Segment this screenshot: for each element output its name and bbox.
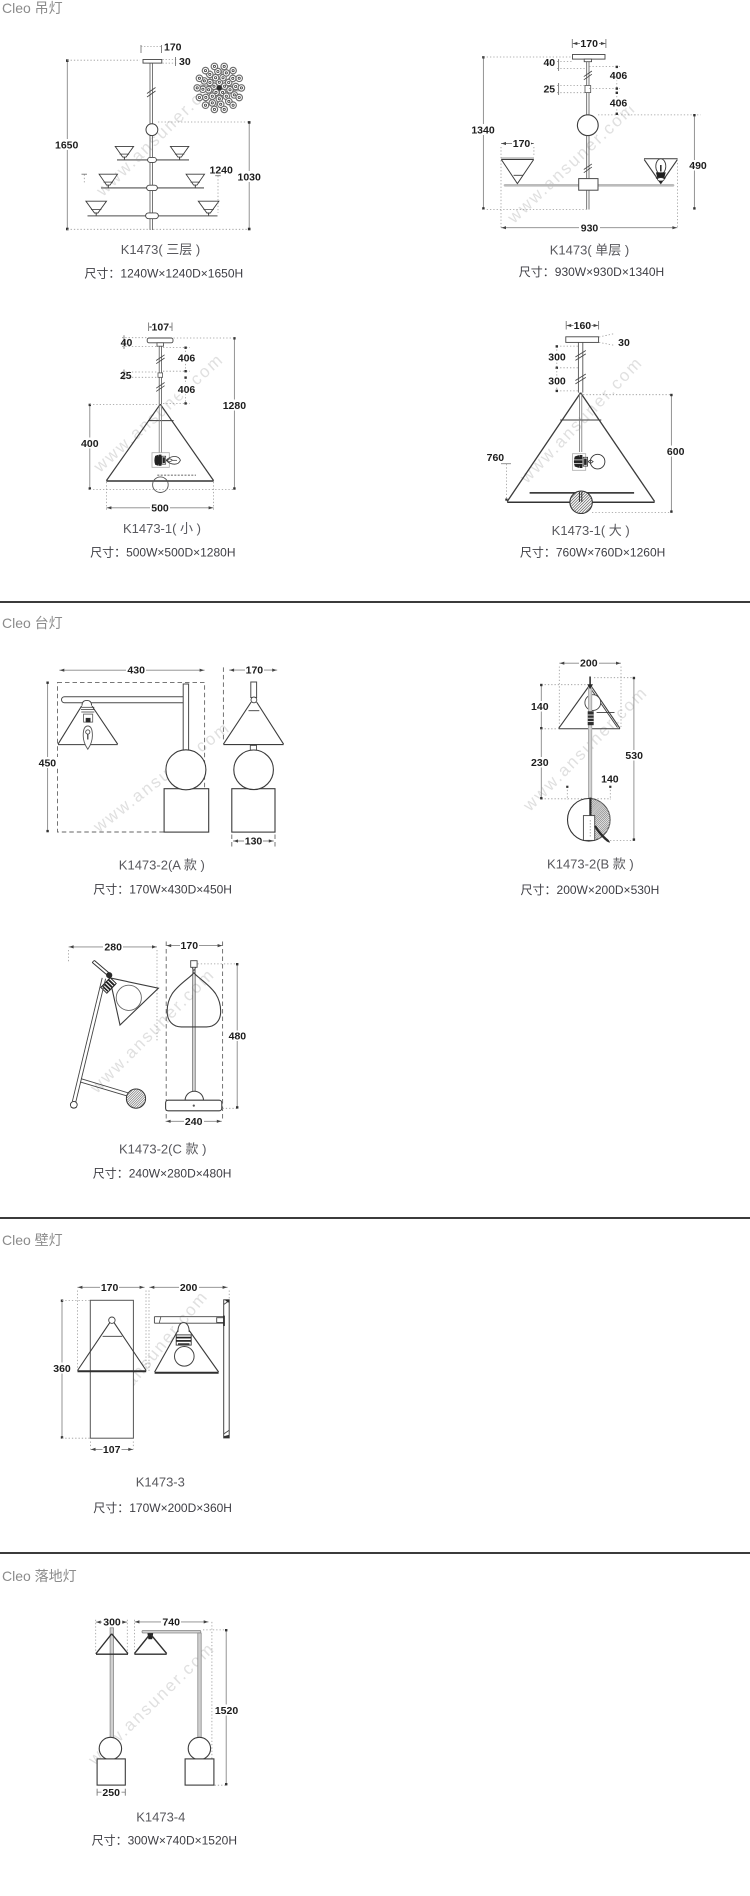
svg-text:200: 200 (580, 658, 598, 670)
svg-text:200: 200 (180, 1282, 198, 1294)
svg-text:600: 600 (667, 446, 685, 458)
svg-text:140: 140 (601, 773, 619, 785)
svg-text:K1473-4: K1473-4 (136, 1810, 185, 1825)
svg-text:406: 406 (178, 353, 196, 365)
svg-text:尺寸：170W×430D×450H: 尺寸：170W×430D×450H (93, 883, 232, 897)
svg-text:930: 930 (581, 223, 599, 235)
svg-text:K1473( 三层 ): K1473( 三层 ) (121, 242, 200, 257)
svg-text:230: 230 (531, 757, 549, 769)
svg-text:www.ansuner.com: www.ansuner.com (89, 718, 234, 837)
svg-text:K1473-2(B 款 ): K1473-2(B 款 ) (547, 857, 634, 872)
svg-text:1240: 1240 (210, 165, 234, 177)
svg-text:25: 25 (120, 370, 132, 382)
svg-text:1520: 1520 (215, 1705, 239, 1717)
svg-text:尺寸：760W×760D×1260H: 尺寸：760W×760D×1260H (520, 546, 665, 560)
svg-text:480: 480 (229, 1031, 247, 1043)
svg-text:尺寸：300W×740D×1520H: 尺寸：300W×740D×1520H (92, 1834, 237, 1848)
svg-text:尺寸：500W×500D×1280H: 尺寸：500W×500D×1280H (90, 546, 235, 560)
svg-text:尺寸：200W×200D×530H: 尺寸：200W×200D×530H (521, 883, 660, 897)
svg-text:1280: 1280 (223, 400, 247, 412)
svg-text:Cleo 壁灯: Cleo 壁灯 (2, 1232, 63, 1248)
svg-text:尺寸：240W×280D×480H: 尺寸：240W×280D×480H (93, 1167, 232, 1181)
svg-text:406: 406 (610, 98, 628, 110)
svg-text:170: 170 (181, 940, 199, 952)
svg-text:740: 740 (162, 1617, 180, 1629)
svg-text:170: 170 (580, 38, 598, 50)
svg-text:K1473-2(C 款 ): K1473-2(C 款 ) (119, 1141, 206, 1156)
svg-text:25: 25 (543, 84, 555, 96)
svg-text:K1473( 单层 ): K1473( 单层 ) (550, 243, 629, 258)
svg-text:尺寸：1240W×1240D×1650H: 尺寸：1240W×1240D×1650H (84, 267, 243, 281)
svg-text:400: 400 (81, 438, 99, 450)
svg-text:406: 406 (610, 70, 628, 82)
svg-text:K1473-1( 大 ): K1473-1( 大 ) (552, 523, 630, 538)
svg-text:107: 107 (152, 322, 170, 334)
svg-text:30: 30 (618, 337, 630, 349)
svg-text:K1473-1( 小 ): K1473-1( 小 ) (123, 521, 201, 536)
svg-text:500: 500 (151, 503, 169, 515)
svg-text:30: 30 (179, 56, 191, 68)
svg-text:K1473-2(A 款 ): K1473-2(A 款 ) (119, 858, 205, 873)
svg-text:170: 170 (246, 665, 264, 677)
svg-text:140: 140 (531, 701, 549, 713)
svg-text:160: 160 (574, 320, 592, 332)
svg-text:430: 430 (127, 665, 145, 677)
svg-text:170: 170 (513, 138, 531, 150)
svg-text:300: 300 (548, 376, 566, 388)
svg-text:130: 130 (245, 836, 263, 848)
svg-text:Cleo 吊灯: Cleo 吊灯 (2, 0, 63, 16)
svg-text:Cleo 落地灯: Cleo 落地灯 (2, 1568, 77, 1584)
svg-text:300: 300 (548, 352, 566, 364)
svg-text:530: 530 (625, 750, 643, 762)
svg-text:1030: 1030 (238, 172, 262, 184)
svg-text:490: 490 (689, 160, 707, 172)
svg-text:1340: 1340 (471, 125, 495, 137)
svg-text:107: 107 (103, 1444, 121, 1456)
svg-text:406: 406 (178, 384, 196, 396)
svg-text:250: 250 (102, 1787, 120, 1799)
svg-text:尺寸：930W×930D×1340H: 尺寸：930W×930D×1340H (519, 265, 664, 279)
svg-text:170: 170 (101, 1282, 119, 1294)
svg-text:240: 240 (185, 1116, 203, 1128)
svg-text:尺寸：170W×200D×360H: 尺寸：170W×200D×360H (93, 1501, 232, 1515)
svg-text:760: 760 (487, 452, 505, 464)
svg-text:300: 300 (103, 1617, 121, 1629)
svg-text:Cleo 台灯: Cleo 台灯 (2, 615, 63, 631)
svg-text:450: 450 (39, 757, 57, 769)
svg-text:40: 40 (121, 337, 133, 349)
svg-text:280: 280 (104, 942, 122, 954)
svg-text:1650: 1650 (55, 140, 79, 152)
svg-text:K1473-3: K1473-3 (136, 1475, 185, 1490)
svg-text:360: 360 (53, 1363, 71, 1375)
svg-text:170: 170 (164, 42, 182, 54)
svg-text:40: 40 (543, 57, 555, 69)
svg-text:www.ansuner.com: www.ansuner.com (503, 98, 640, 227)
